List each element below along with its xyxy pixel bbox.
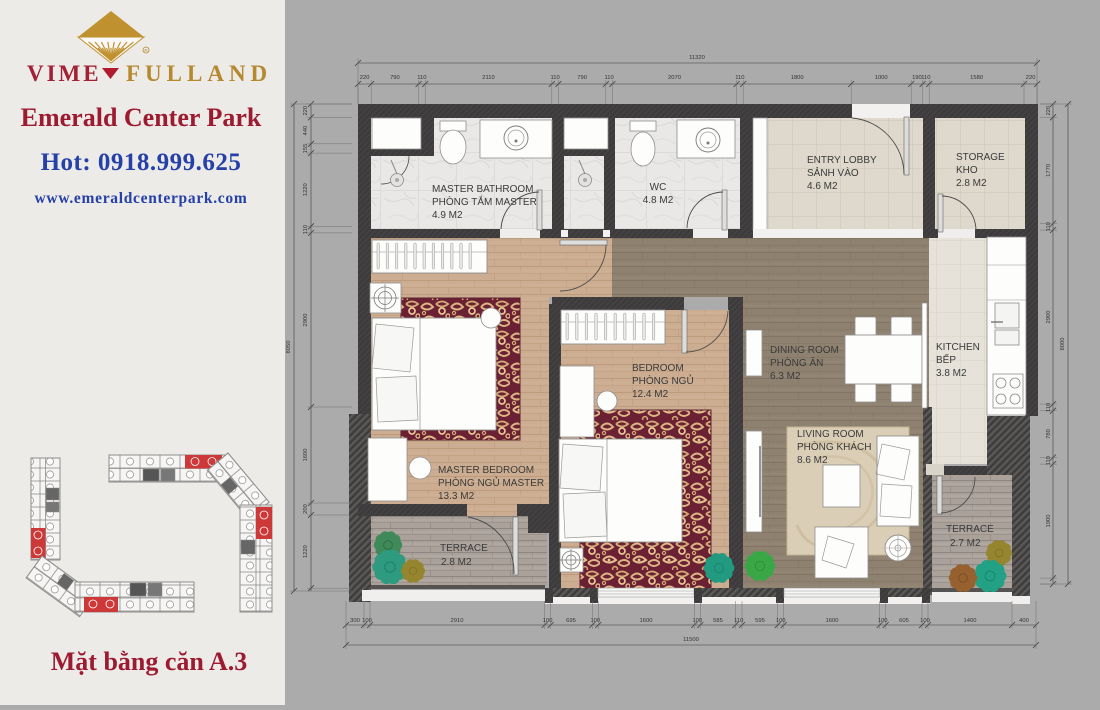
svg-text:3.8 M2: 3.8 M2 [936, 368, 967, 379]
svg-text:1770: 1770 [1046, 164, 1052, 177]
svg-text:110: 110 [921, 75, 930, 81]
svg-text:220: 220 [303, 106, 309, 116]
svg-text:1000: 1000 [875, 75, 888, 81]
svg-text:100: 100 [776, 618, 786, 624]
svg-text:4.9 M2: 4.9 M2 [432, 210, 463, 221]
svg-text:2900: 2900 [1046, 311, 1052, 324]
svg-text:110: 110 [735, 75, 744, 81]
svg-text:STORAGE: STORAGE [956, 152, 1005, 163]
svg-text:100: 100 [362, 618, 372, 624]
svg-text:BEDROOM: BEDROOM [632, 363, 684, 374]
svg-text:BẾP: BẾP [936, 353, 956, 366]
svg-text:PHÒNG NGỦ MASTER: PHÒNG NGỦ MASTER [438, 476, 544, 489]
svg-text:11320: 11320 [689, 55, 705, 61]
svg-text:110: 110 [734, 618, 743, 624]
svg-text:8000: 8000 [1060, 338, 1066, 351]
svg-text:1600: 1600 [640, 618, 653, 624]
svg-text:SẢNH VÀO: SẢNH VÀO [807, 166, 859, 179]
svg-text:2900: 2900 [303, 314, 309, 327]
svg-text:2.7 M2: 2.7 M2 [950, 538, 981, 549]
svg-text:585: 585 [713, 618, 723, 624]
svg-text:1220: 1220 [303, 545, 309, 558]
svg-text:2.8 M2: 2.8 M2 [441, 557, 472, 568]
svg-text:MASTER BATHROOM: MASTER BATHROOM [432, 184, 533, 195]
svg-text:1800: 1800 [791, 75, 804, 81]
svg-text:100: 100 [590, 618, 600, 624]
svg-text:400: 400 [1019, 618, 1029, 624]
svg-text:KHO: KHO [956, 165, 978, 176]
svg-text:100: 100 [878, 618, 888, 624]
svg-text:220: 220 [1046, 106, 1052, 116]
svg-text:2910: 2910 [451, 618, 464, 624]
svg-text:155: 155 [303, 144, 309, 154]
svg-text:Hot: 0918.999.625: Hot: 0918.999.625 [41, 149, 242, 176]
svg-text:100: 100 [920, 618, 930, 624]
svg-text:595: 595 [755, 618, 765, 624]
svg-text:Mặt bằng căn A.3: Mặt bằng căn A.3 [51, 647, 247, 676]
svg-text:13.3 M2: 13.3 M2 [438, 491, 475, 502]
svg-text:4.6 M2: 4.6 M2 [807, 181, 838, 192]
svg-text:1600: 1600 [303, 449, 309, 462]
svg-text:110: 110 [550, 75, 559, 81]
svg-text:1220: 1220 [303, 183, 309, 196]
svg-text:VIME: VIME [27, 61, 102, 86]
svg-text:TERRACE: TERRACE [440, 543, 488, 554]
svg-text:300: 300 [350, 618, 360, 624]
svg-text:100: 100 [692, 618, 702, 624]
svg-text:110: 110 [303, 225, 309, 234]
svg-text:110: 110 [1046, 456, 1052, 465]
svg-text:PHÒNG KHÁCH: PHÒNG KHÁCH [797, 440, 871, 453]
svg-text:PHÒNG TẮM MASTER: PHÒNG TẮM MASTER [432, 195, 537, 208]
svg-text:780: 780 [1046, 429, 1052, 439]
svg-text:ENTRY LOBBY: ENTRY LOBBY [807, 155, 877, 166]
svg-text:6.3 M2: 6.3 M2 [770, 371, 801, 382]
svg-text:PHÒNG ĂN: PHÒNG ĂN [770, 356, 823, 369]
svg-text:MASTER BEDROOM: MASTER BEDROOM [438, 465, 534, 476]
svg-text:www.emeraldcenterpark.com: www.emeraldcenterpark.com [35, 190, 248, 207]
svg-text:LIVING ROOM: LIVING ROOM [797, 429, 864, 440]
svg-text:Emerald Center Park: Emerald Center Park [21, 103, 262, 132]
svg-text:1580: 1580 [970, 75, 983, 81]
svg-text:100: 100 [543, 618, 553, 624]
svg-text:2.8 M2: 2.8 M2 [956, 178, 987, 189]
svg-text:4.8 M2: 4.8 M2 [643, 195, 674, 206]
svg-text:695: 695 [566, 618, 576, 624]
svg-text:220: 220 [1026, 75, 1036, 81]
svg-text:8050: 8050 [286, 341, 292, 354]
svg-text:220: 220 [360, 75, 370, 81]
svg-text:KITCHEN: KITCHEN [936, 342, 980, 353]
svg-text:12.4 M2: 12.4 M2 [632, 389, 669, 400]
svg-text:8.6 M2: 8.6 M2 [797, 455, 828, 466]
svg-text:790: 790 [390, 75, 400, 81]
svg-text:TERRACE: TERRACE [946, 524, 994, 535]
svg-text:110: 110 [1046, 222, 1052, 231]
svg-text:2110: 2110 [482, 75, 494, 81]
svg-text:FULLAND: FULLAND [126, 61, 272, 86]
svg-text:110: 110 [1046, 403, 1052, 412]
svg-text:200: 200 [303, 504, 309, 514]
svg-text:440: 440 [303, 126, 309, 136]
svg-text:2070: 2070 [668, 75, 681, 81]
svg-text:1900: 1900 [1046, 515, 1052, 528]
svg-text:DINING ROOM: DINING ROOM [770, 345, 839, 356]
svg-text:790: 790 [577, 75, 587, 81]
svg-text:1400: 1400 [964, 618, 977, 624]
svg-text:1600: 1600 [826, 618, 839, 624]
svg-text:110: 110 [604, 75, 613, 81]
svg-text:PHÒNG NGỦ: PHÒNG NGỦ [632, 374, 694, 387]
svg-text:110: 110 [417, 75, 426, 81]
svg-text:605: 605 [899, 618, 909, 624]
svg-text:11500: 11500 [683, 637, 699, 643]
svg-text:WC: WC [650, 182, 667, 193]
